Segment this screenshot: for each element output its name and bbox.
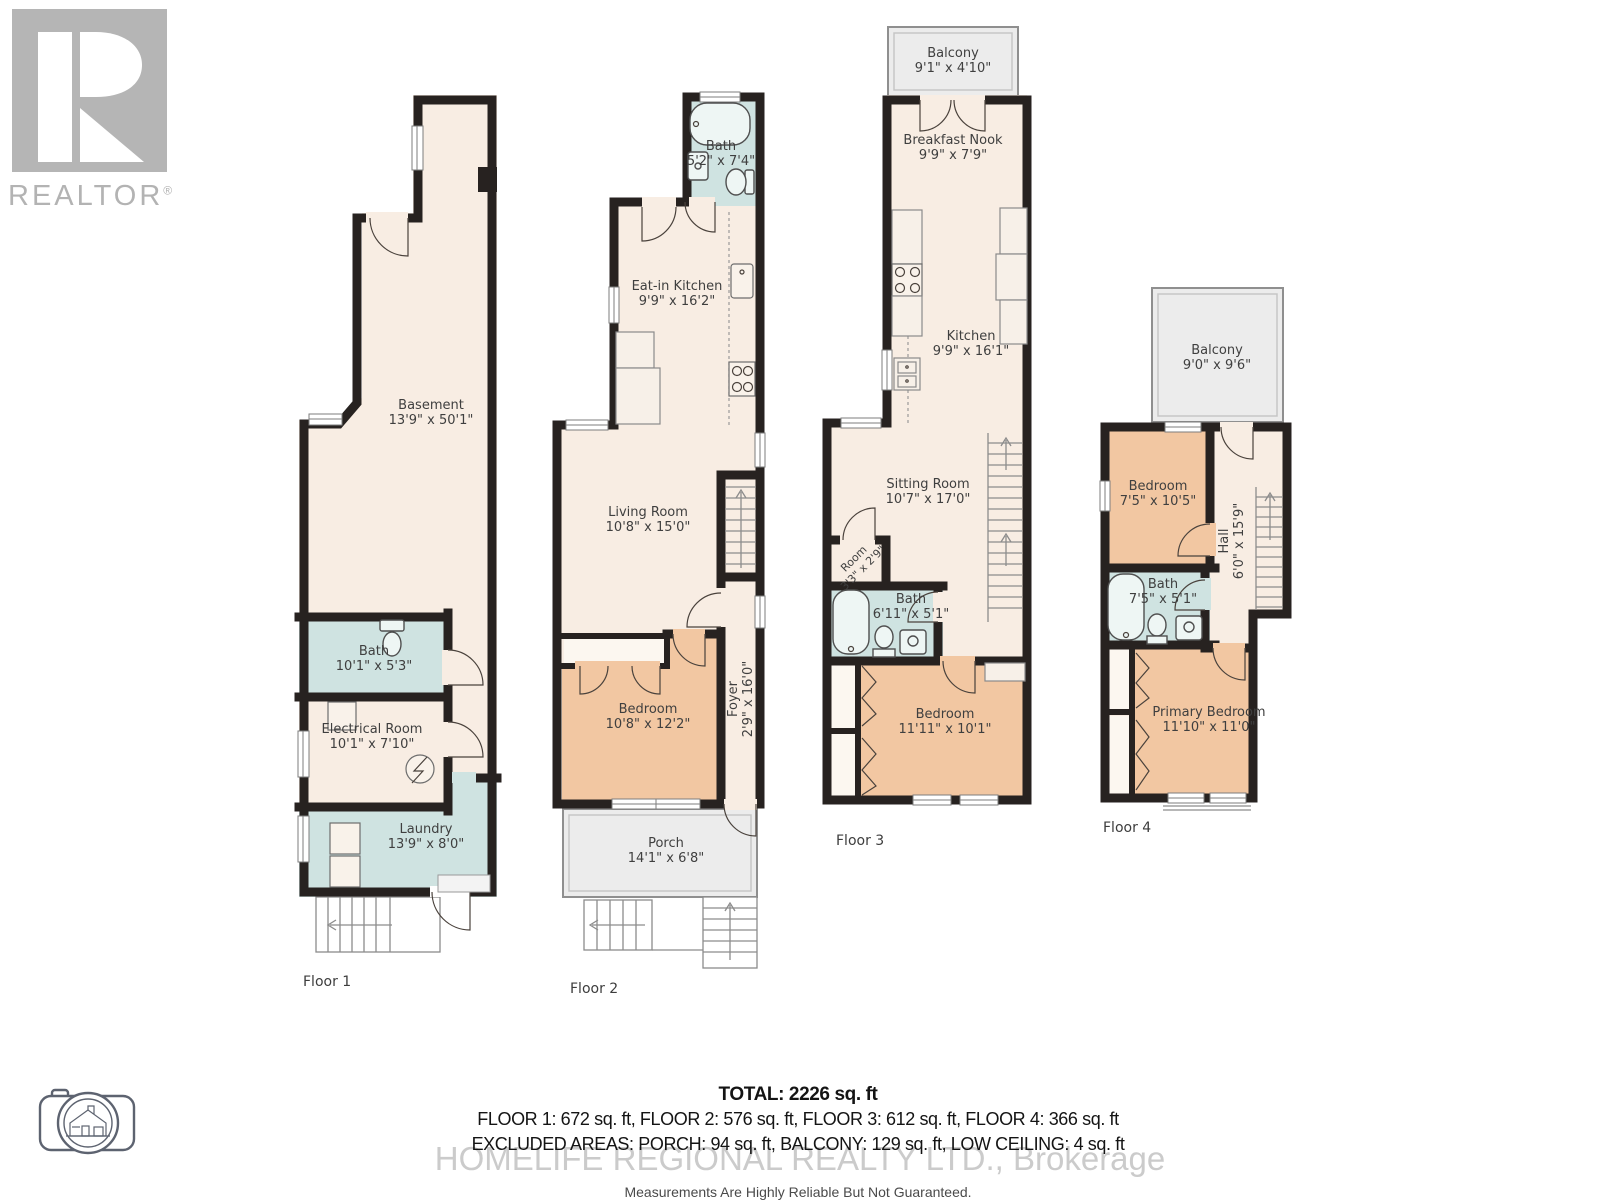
room-label-primary-bedroom: Primary Bedroom11'10" x 11'0" — [1152, 705, 1265, 735]
room-label-hall: Hall6'0" x 15'9" — [1217, 503, 1247, 579]
electrical-meter-icon — [406, 755, 434, 783]
toilet-icon — [1147, 614, 1167, 644]
floor-areas: FLOOR 1: 672 sq. ft, FLOOR 2: 576 sq. ft… — [477, 1109, 1118, 1130]
room-label-laundry: Laundry13'9" x 8'0" — [388, 822, 464, 852]
sink-icon — [900, 630, 926, 654]
floor-plan-sheet: REALTOR® — [0, 0, 1600, 1200]
registered-trademark-icon: ® — [163, 183, 175, 197]
floor4-tag: Floor 4 — [1103, 820, 1151, 836]
sink-icon — [1176, 616, 1202, 640]
dresser-icon — [985, 663, 1025, 681]
room-label-kitchen3: Kitchen9'9" x 16'1" — [933, 329, 1009, 359]
door-landing — [438, 875, 490, 892]
excluded-areas: EXCLUDED AREAS: PORCH: 94 sq. ft, BALCON… — [472, 1134, 1125, 1155]
room-label-electrical: Electrical Room10'1" x 7'10" — [322, 722, 423, 752]
room-label-bath3: Bath6'11" x 5'1" — [873, 592, 949, 622]
room-label-balcony3: Balcony9'1" x 4'10" — [915, 46, 991, 76]
room-label-bath2: Bath5'2" x 7'4" — [687, 139, 755, 169]
washer-icon — [330, 823, 360, 854]
room-label-living-room: Living Room10'8" x 15'0" — [606, 505, 691, 535]
floor1-tag: Floor 1 — [303, 974, 351, 990]
disclaimer: Measurements Are Highly Reliable But Not… — [624, 1184, 971, 1200]
chimney — [478, 167, 497, 192]
room-label-eatin-kitchen: Eat-in Kitchen9'9" x 16'2" — [632, 279, 723, 309]
room-label-foyer: Foyer2'9" x 16'0" — [726, 661, 756, 737]
toilet-icon — [726, 169, 754, 195]
room-label-bedroom4: Bedroom7'5" x 10'5" — [1120, 479, 1196, 509]
room-label-bedroom2: Bedroom10'8" x 12'2" — [606, 702, 691, 732]
floor2-front-stairs — [584, 897, 757, 968]
room-label-breakfast-nook: Breakfast Nook9'9" x 7'9" — [903, 133, 1002, 163]
floor3-tag: Floor 3 — [836, 833, 884, 849]
room-label-sitting-room: Sitting Room10'7" x 17'0" — [886, 477, 971, 507]
room-label-bath4: Bath7'5" x 5'1" — [1129, 577, 1197, 607]
floor2-plan — [550, 86, 768, 1006]
floor1-entry-stairs — [316, 897, 440, 952]
room-label-porch: Porch14'1" x 6'8" — [628, 836, 704, 866]
room-label-bedroom3: Bedroom11'11" x 10'1" — [899, 707, 992, 737]
total-area: TOTAL: 2226 sq. ft — [719, 1084, 878, 1106]
bathtub-icon — [833, 590, 869, 654]
room-label-balcony4: Balcony9'0" x 9'6" — [1183, 343, 1251, 373]
toilet-icon — [873, 626, 895, 657]
room-label-basement: Basement13'9" x 50'1" — [389, 398, 474, 428]
room-label-bath1: Bath10'1" x 5'3" — [336, 644, 412, 674]
realtor-logo — [10, 8, 180, 178]
floor1-plan — [294, 88, 508, 1002]
dryer-icon — [330, 856, 360, 887]
photography-camera-logo — [36, 1080, 146, 1160]
floor2-tag: Floor 2 — [570, 981, 618, 997]
realtor-wordmark: REALTOR® — [8, 180, 175, 213]
